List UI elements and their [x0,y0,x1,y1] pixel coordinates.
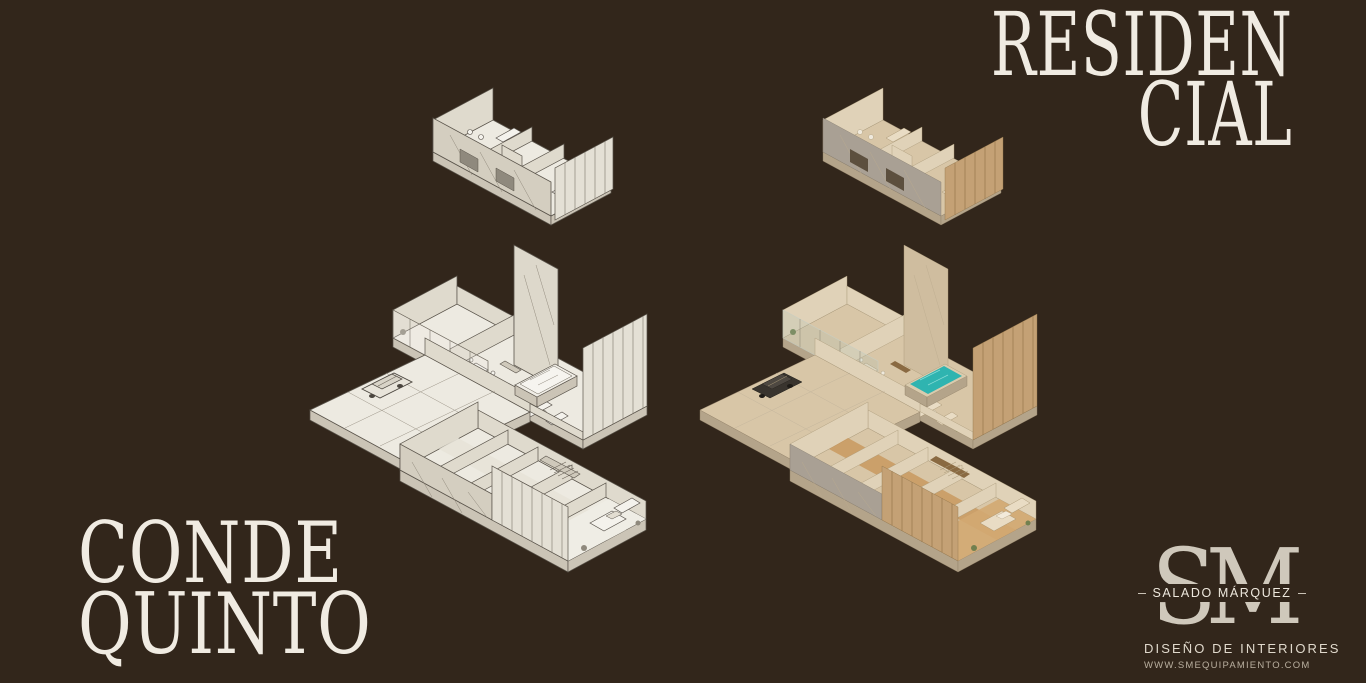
floorplan-render-illustration [690,80,1050,610]
name-rule-right [1298,593,1306,594]
brand-block: SM SALADO MÁRQUEZ DISEÑO DE INTERIORES W… [1144,546,1300,671]
render-upper-floor [823,88,1003,225]
poster-canvas: RESIDEN CIAL CONDE QUINTO [0,0,1366,683]
name-rule-left [1138,593,1146,594]
brand-monogram-wrap: SM SALADO MÁRQUEZ [1144,546,1300,634]
brand-website: WWW.SMEQUIPAMIENTO.COM [1144,660,1300,671]
sketch-upper-floor [433,88,613,225]
studio-name-band: SALADO MÁRQUEZ [1138,584,1306,602]
floorplan-sketch-illustration [300,80,660,610]
studio-name: SALADO MÁRQUEZ [1152,586,1291,600]
